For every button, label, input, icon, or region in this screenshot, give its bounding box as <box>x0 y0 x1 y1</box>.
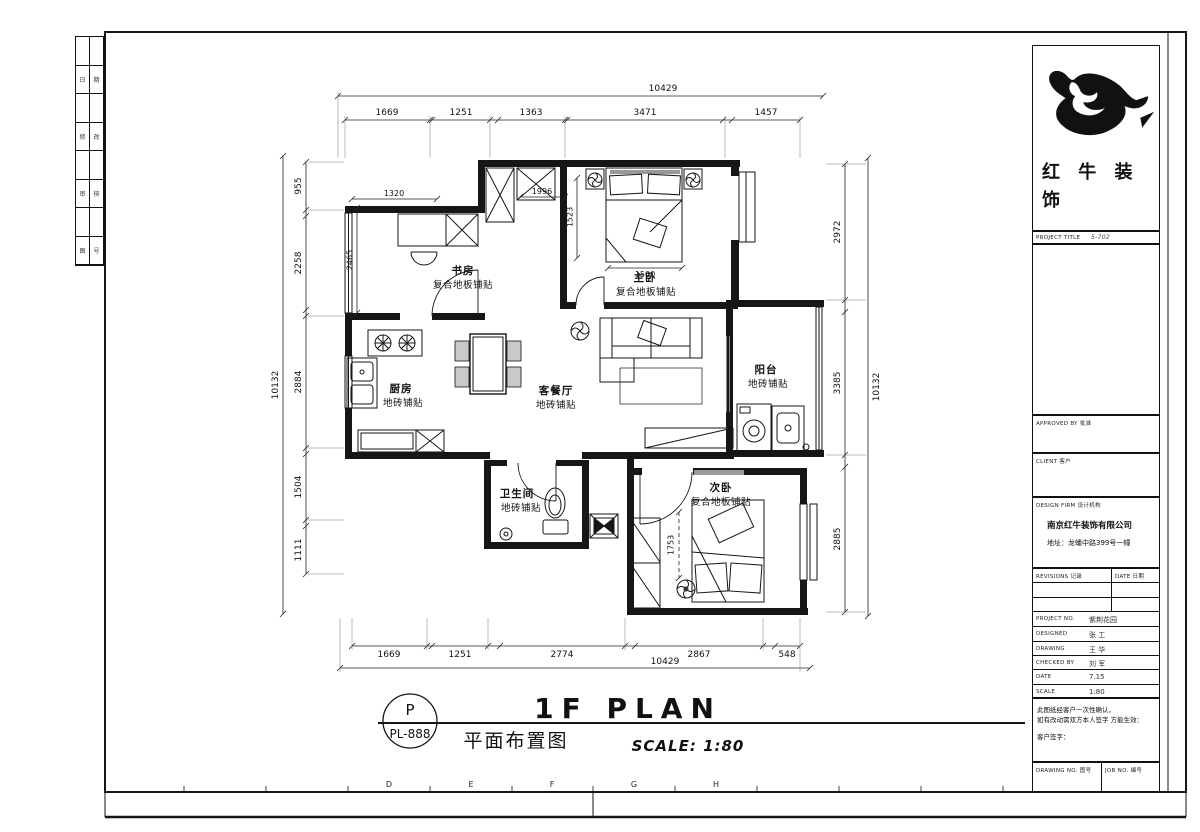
dim-left-1: 955 <box>294 177 304 194</box>
master-bed <box>606 168 682 262</box>
grid-letter-d: D <box>386 780 392 789</box>
design-firm-label: DESIGN FIRM 设计机构 <box>1036 501 1101 509</box>
rug <box>620 368 702 404</box>
edge-strip: 日 期 修 改 审 核 图 号 <box>75 36 105 266</box>
dining-table <box>470 334 506 394</box>
sofa <box>600 318 702 382</box>
dim-left-4: 1504 <box>294 476 304 499</box>
dim-right-1: 2972 <box>833 221 843 244</box>
design-firm-box: DESIGN FIRM 设计机构 南京红牛装饰有限公司 地址：龙蟠中路399号一… <box>1032 497 1160 568</box>
row-value: 刘 军 <box>1089 659 1105 669</box>
client-box: CLIENT 客户 <box>1032 453 1160 497</box>
dim-bot-3: 2774 <box>551 650 574 660</box>
strip-cell: 改 <box>93 132 99 141</box>
logo-box: 红 牛 装 饰 <box>1032 45 1160 231</box>
study-chair <box>411 252 437 265</box>
info-row-designed: DESIGNED 张 工 <box>1033 626 1159 640</box>
room-floor-balcony: 地砖铺贴 <box>748 376 788 390</box>
client-label: CLIENT 客户 <box>1036 457 1071 465</box>
plan-scale: SCALE: 1:80 <box>632 737 745 755</box>
dim-top-5: 1457 <box>755 108 778 118</box>
drawing-sheet: 书房 复合地板铺贴 主卧 复合地板铺贴 厨房 地砖铺贴 客餐厅 地砖铺贴 阳台 … <box>0 0 1200 832</box>
room-label-study: 书房 <box>452 263 475 278</box>
grid-letter-g: G <box>631 780 637 789</box>
revisions-divider <box>1111 569 1112 611</box>
project-title-row: PROJECT TITLE 5-702 <box>1032 231 1160 244</box>
room-floor-second: 复合地板铺贴 <box>691 494 751 508</box>
grid-letter-e: E <box>468 780 473 789</box>
note-line-1: 此图纸经客户一次性确认， <box>1037 704 1115 714</box>
logo-text-line1: 红 牛 装 <box>1042 158 1139 184</box>
nightstand-lamp-icon-2 <box>686 173 700 187</box>
strip-cell: 图 <box>79 246 85 255</box>
room-floor-study: 复合地板铺贴 <box>433 277 493 291</box>
dim-study-width: 1320 <box>384 189 404 198</box>
info-row-checked: CHECKED BY 刘 军 <box>1033 655 1159 669</box>
dim-right-2: 3385 <box>833 372 843 395</box>
company-name: 南京红牛装饰有限公司 <box>1047 519 1132 531</box>
room-floor-kitchen: 地砖铺贴 <box>383 395 423 409</box>
ceiling-lamp-icon <box>571 322 589 340</box>
bath-floor-sink <box>500 528 512 540</box>
master-door <box>576 277 604 305</box>
row-value: 王 华 <box>1089 645 1105 655</box>
drawing-no-label: DRAWING NO. 图号 <box>1036 766 1091 774</box>
nightstand-lamp-icon <box>588 173 602 187</box>
dim-entry: 1996 <box>532 187 552 196</box>
room-label-bath: 卫生间 <box>500 486 535 501</box>
job-no-label: JOB NO. 编号 <box>1105 766 1142 774</box>
logo-text-line2: 饰 <box>1042 186 1060 212</box>
info-rows: PROJECT NO. 紫荆花园 DESIGNED 张 工 DRAWING 王 … <box>1032 612 1160 698</box>
dim-left-2: 2258 <box>294 252 304 275</box>
grid-letter-f: F <box>550 780 555 789</box>
row-label: DATE <box>1036 674 1052 680</box>
second-bedroom-window <box>800 504 817 580</box>
master-bay-window <box>739 172 755 242</box>
stamp-symbol: P <box>405 701 414 719</box>
approved-box: APPROVED BY 批准 <box>1032 415 1160 453</box>
second-bedroom-door <box>640 472 692 524</box>
note-line-3: 客户签字： <box>1037 731 1070 741</box>
info-row-date: DATE 7.15 <box>1033 669 1159 683</box>
row-label: DESIGNED <box>1036 631 1067 637</box>
row-label: PROJECT NO. <box>1036 616 1075 622</box>
balcony-sliding-door <box>727 336 733 412</box>
info-row-drawing: DRAWING 王 华 <box>1033 641 1159 655</box>
revisions-rowline <box>1033 597 1159 598</box>
dim-bot-1: 1669 <box>378 650 401 660</box>
row-label: DRAWING <box>1036 646 1065 652</box>
room-floor-master: 复合地板铺贴 <box>616 284 676 298</box>
company-address: 地址：龙蟠中路399号一幢 <box>1047 538 1130 548</box>
date-col-label: DATE 日期 <box>1115 572 1144 580</box>
note-box: 此图纸经客户一次性确认， 如有改动需双方本人签字 方能生效： 客户签字： <box>1032 698 1160 762</box>
floor-drain-icon <box>590 514 618 538</box>
dim-right-3: 2885 <box>833 528 843 551</box>
row-value: 紫荆花园 <box>1089 615 1117 625</box>
plan-title-cn: 平面布置图 <box>463 726 568 753</box>
dim-right-overall: 10132 <box>872 373 882 402</box>
project-title-label: PROJECT TITLE <box>1036 235 1080 241</box>
dim-second-height: 1753 <box>667 535 676 555</box>
revisions-header: REVISIONS 记录 DATE 日期 <box>1033 569 1159 583</box>
info-row-project: PROJECT NO. 紫荆花园 <box>1033 612 1159 626</box>
dim-top-1: 1669 <box>376 108 399 118</box>
row-label: SCALE <box>1036 689 1055 695</box>
row-value: 张 工 <box>1089 630 1105 640</box>
dining-chairs <box>455 341 521 387</box>
dim-left-3: 2884 <box>294 371 304 394</box>
dim-bot-overall: 10429 <box>651 657 680 667</box>
washing-machine-icon <box>737 404 771 452</box>
strip-cell: 审 <box>79 189 85 198</box>
strip-cell: 核 <box>93 189 99 198</box>
dim-bed-width: 1500 <box>635 270 655 279</box>
dim-left-5: 1111 <box>294 539 304 562</box>
room-floor-living: 地砖铺贴 <box>536 397 576 411</box>
room-label-kitchen: 厨房 <box>390 381 413 396</box>
revisions-label: REVISIONS 记录 <box>1036 572 1082 580</box>
dim-bot-4: 2867 <box>688 650 711 660</box>
strip-cell: 期 <box>93 75 99 84</box>
dim-left-overall: 10132 <box>271 371 281 400</box>
project-title-space <box>1032 244 1160 415</box>
grid-letter-h: H <box>713 780 719 789</box>
dim-top-3: 1363 <box>520 108 543 118</box>
dim-top-overall: 10429 <box>649 84 678 94</box>
kitchen-cabinet <box>358 430 444 452</box>
redbull-logo <box>1038 60 1156 152</box>
dim-bot-2: 1251 <box>449 650 472 660</box>
row-value: 7.15 <box>1089 673 1105 681</box>
strip-cell: 日 <box>79 75 85 84</box>
project-title-value: 5-702 <box>1091 234 1110 241</box>
toilet-icon <box>543 488 568 534</box>
drawing-no-box: DRAWING NO. 图号 JOB NO. 编号 <box>1032 762 1160 792</box>
strip-cell: 修 <box>79 132 85 141</box>
tv-cabinet <box>645 428 733 448</box>
plan-title-en: 1F PLAN <box>534 692 722 725</box>
study-desk <box>398 214 478 265</box>
room-label-second: 次卧 <box>710 480 733 495</box>
dim-master-height: 1523 <box>566 207 575 227</box>
balcony-basin <box>772 406 809 452</box>
row-value: 1:80 <box>1089 688 1105 696</box>
room-floor-bath: 地砖铺贴 <box>501 500 541 514</box>
room-label-living: 客餐厅 <box>539 383 574 398</box>
room-label-balcony: 阳台 <box>755 362 778 377</box>
revisions-table: REVISIONS 记录 DATE 日期 <box>1032 568 1160 612</box>
wardrobe <box>630 518 660 608</box>
strip-cell: 号 <box>93 246 99 255</box>
dim-study-height: 2465 <box>346 250 355 270</box>
stamp-code: PL-888 <box>390 727 431 741</box>
approved-label: APPROVED BY 批准 <box>1036 419 1091 427</box>
gas-stove-icon <box>368 330 422 356</box>
info-row-scale: SCALE 1:80 <box>1033 684 1159 698</box>
dim-top-2: 1251 <box>450 108 473 118</box>
dim-top-4: 3471 <box>634 108 657 118</box>
drawing-no-divider <box>1101 763 1102 791</box>
note-line-2: 如有改动需双方本人签字 方能生效： <box>1037 714 1143 724</box>
dim-bot-5: 548 <box>778 650 795 660</box>
balcony-window <box>816 307 822 450</box>
row-label: CHECKED BY <box>1036 660 1074 666</box>
